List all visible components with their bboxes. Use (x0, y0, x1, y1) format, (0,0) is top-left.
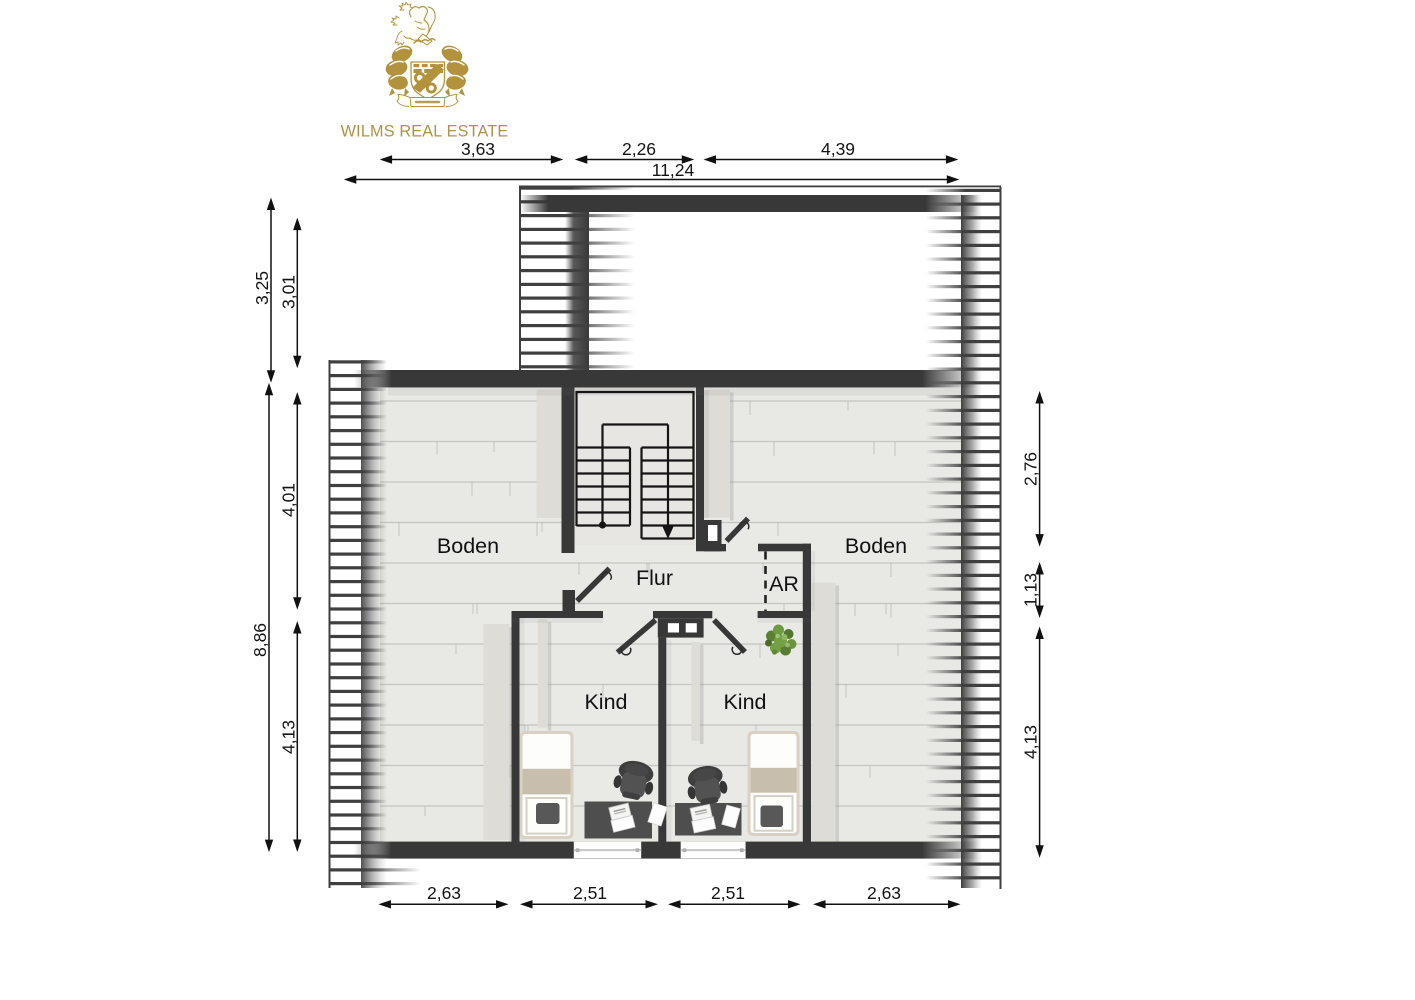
svg-text:3,25: 3,25 (252, 271, 272, 305)
svg-text:AR: AR (769, 572, 799, 596)
svg-text:4,39: 4,39 (821, 139, 855, 159)
svg-text:2,76: 2,76 (1021, 452, 1041, 486)
svg-text:3,63: 3,63 (461, 139, 495, 159)
svg-text:1,13: 1,13 (1021, 573, 1041, 607)
svg-text:2,63: 2,63 (427, 883, 461, 903)
svg-text:WILMS REAL ESTATE: WILMS REAL ESTATE (341, 123, 509, 141)
svg-text:2,51: 2,51 (711, 883, 745, 903)
svg-text:11,24: 11,24 (652, 160, 695, 180)
svg-text:4,01: 4,01 (278, 483, 298, 517)
svg-text:Kind: Kind (584, 690, 627, 714)
svg-text:8,86: 8,86 (250, 623, 270, 657)
svg-text:4,13: 4,13 (278, 720, 298, 754)
svg-text:2,51: 2,51 (573, 883, 607, 903)
svg-text:Boden: Boden (845, 534, 907, 558)
svg-text:4,13: 4,13 (1021, 725, 1041, 759)
svg-text:2,63: 2,63 (867, 883, 901, 903)
svg-text:Flur: Flur (636, 566, 673, 590)
svg-text:2,26: 2,26 (622, 139, 656, 159)
svg-text:Boden: Boden (437, 534, 499, 558)
svg-text:3,01: 3,01 (278, 275, 298, 309)
svg-text:Kind: Kind (723, 690, 766, 714)
